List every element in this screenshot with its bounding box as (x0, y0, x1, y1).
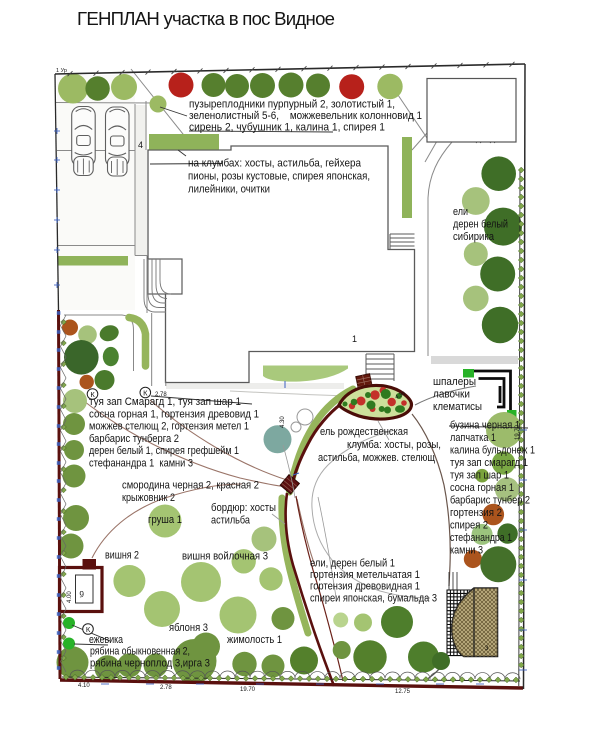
svg-text:сибирика: сибирика (453, 231, 495, 243)
svg-text:шпалеры: шпалеры (433, 376, 476, 388)
svg-text:дерен белый 1, спирея грефшейм: дерен белый 1, спирея грефшейм 1 (89, 445, 239, 457)
svg-text:стефанандра 1: стефанандра 1 (450, 532, 512, 544)
svg-text:спирея 2: спирея 2 (450, 520, 488, 532)
svg-text:12.75: 12.75 (395, 689, 411, 695)
svg-text:жимолость 1: жимолость 1 (227, 634, 282, 646)
svg-text:спиреи японская, бумальда 3: спиреи японская, бумальда 3 (310, 593, 437, 605)
svg-text:гортензия древовидная 1: гортензия древовидная 1 (310, 581, 420, 593)
svg-text:19.70: 19.70 (240, 687, 256, 693)
svg-text:зеленолистный 5-6, можжевел: зеленолистный 5-6, можжевельник колоннов… (189, 110, 422, 122)
svg-text:ели: ели (453, 206, 468, 218)
svg-text:гортензия метельчатая 1: гортензия метельчатая 1 (310, 569, 420, 581)
svg-text:рябина черноплод 3,ирга 3: рябина черноплод 3,ирга 3 (90, 658, 210, 670)
svg-text:ГЕНПЛАН участка в пос Видное: ГЕНПЛАН участка в пос Видное (77, 8, 335, 29)
svg-text:вишня 2: вишня 2 (105, 550, 139, 562)
svg-text:смородина черная 2, красная 2: смородина черная 2, красная 2 (122, 480, 259, 492)
svg-text:калина бульдонеж 1: калина бульдонеж 1 (450, 445, 535, 457)
svg-text:4.30: 4.30 (280, 416, 286, 428)
svg-text:4.00: 4.00 (67, 591, 73, 603)
svg-text:лавочки: лавочки (433, 389, 470, 401)
svg-text:2.78: 2.78 (160, 685, 172, 691)
svg-text:туя зап смарагд 1: туя зап смарагд 1 (450, 457, 528, 469)
svg-text:вишня войлочная 3: вишня войлочная 3 (182, 551, 268, 563)
svg-text:туя зап Смарагд 1, туя зап шар: туя зап Смарагд 1, туя зап шар 1 (89, 396, 241, 408)
svg-text:лапчатка 1: лапчатка 1 (450, 432, 496, 444)
svg-text:яблоня 3: яблоня 3 (169, 622, 208, 634)
svg-text:К: К (86, 625, 91, 634)
svg-text:б: б (79, 589, 84, 598)
svg-text:клематисы: клематисы (433, 401, 482, 413)
svg-text:1 Ур: 1 Ур (56, 68, 67, 74)
svg-text:крыжовник 2: крыжовник 2 (122, 492, 175, 504)
svg-text:4: 4 (138, 140, 143, 150)
svg-text:барбарис тунберга 2: барбарис тунберга 2 (89, 433, 179, 445)
svg-text:сирень 2, чубушник 1, калина 1: сирень 2, чубушник 1, калина 1, спирея 1 (189, 122, 385, 134)
svg-text:ели, дерен белый 1: ели, дерен белый 1 (310, 558, 395, 570)
svg-text:пузыреплодники пурпурный 2, зо: пузыреплодники пурпурный 2, золотистый 1… (189, 99, 395, 111)
svg-text:гортензия 2: гортензия 2 (450, 507, 502, 519)
svg-text:камни 3: камни 3 (450, 545, 483, 557)
svg-text:на клумбах: хосты, астильба, г: на клумбах: хосты, астильба, гейхера (188, 158, 362, 170)
svg-text:астильба, можжев. стелющ: астильба, можжев. стелющ (318, 452, 436, 464)
svg-text:сосна горная 1: сосна горная 1 (450, 482, 514, 494)
svg-text:клумба: хосты, розы,: клумба: хосты, розы, (347, 439, 441, 451)
svg-text:дерен белый: дерен белый (453, 219, 508, 231)
svg-text:сосна горная 1, гортензия древ: сосна горная 1, гортензия древовид 1 (89, 408, 259, 420)
svg-text:ель рождественская: ель рождественская (320, 426, 408, 438)
svg-text:4.10: 4.10 (78, 683, 90, 689)
svg-text:рябина обыкновенная 2,: рябина обыкновенная 2, (90, 646, 190, 658)
svg-text:груша 1: груша 1 (148, 514, 182, 526)
svg-text:барбарис тунбер 2: барбарис тунбер 2 (450, 495, 530, 507)
svg-text:бордюр: хосты: бордюр: хосты (211, 502, 276, 514)
svg-text:1: 1 (352, 334, 357, 344)
svg-text:стефанандра 1 камни 3: стефанандра 1 камни 3 (89, 458, 193, 470)
svg-text:ежевика: ежевика (89, 634, 124, 646)
svg-text:астильба: астильба (211, 515, 251, 527)
svg-text:пионы, розы кустовые, спирея я: пионы, розы кустовые, спирея японская, (188, 171, 370, 183)
svg-text:лилейники, очитки: лилейники, очитки (188, 184, 270, 196)
svg-text:бузина черная 1: бузина черная 1 (450, 420, 520, 432)
svg-text:туя зап шар 1: туя зап шар 1 (450, 470, 509, 482)
svg-text:можжев стелющ 2, гортензия мет: можжев стелющ 2, гортензия метел 1 (89, 421, 249, 433)
